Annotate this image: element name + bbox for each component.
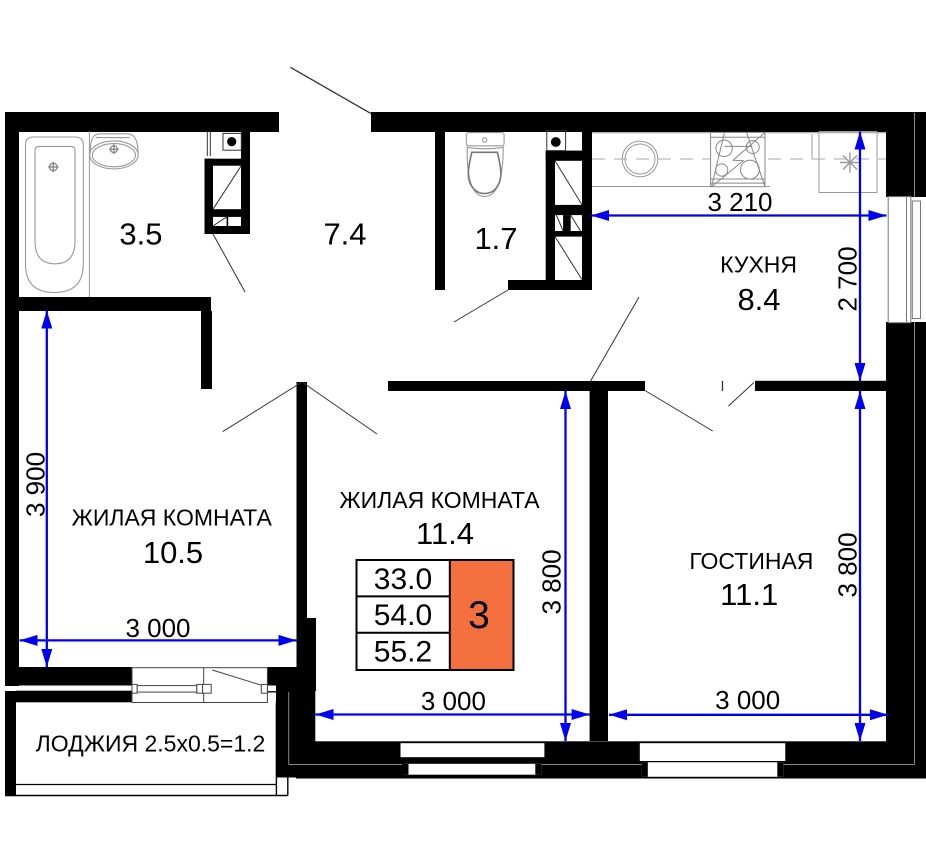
svg-text:54.0: 54.0 xyxy=(374,599,432,632)
svg-text:3 800: 3 800 xyxy=(833,532,863,597)
svg-text:3 000: 3 000 xyxy=(421,686,486,716)
svg-text:33.0: 33.0 xyxy=(374,563,432,596)
svg-text:3 210: 3 210 xyxy=(707,187,772,217)
svg-text:ЛОДЖИЯ 2.5х0.5=1.2: ЛОДЖИЯ 2.5х0.5=1.2 xyxy=(36,731,266,757)
svg-text:11.1: 11.1 xyxy=(720,577,778,612)
svg-text:ГОСТИНАЯ: ГОСТИНАЯ xyxy=(689,548,813,574)
svg-text:ЖИЛАЯ КОМНАТА: ЖИЛАЯ КОМНАТА xyxy=(339,487,540,513)
svg-text:3: 3 xyxy=(468,594,490,637)
svg-text:3 800: 3 800 xyxy=(537,549,567,614)
svg-text:11.4: 11.4 xyxy=(416,516,474,551)
svg-text:ЖИЛАЯ КОМНАТА: ЖИЛАЯ КОМНАТА xyxy=(72,505,273,531)
svg-text:55.2: 55.2 xyxy=(374,636,432,669)
svg-text:1.7: 1.7 xyxy=(474,221,517,256)
svg-text:3.5: 3.5 xyxy=(119,217,162,252)
svg-text:10.5: 10.5 xyxy=(143,535,203,570)
svg-text:2 700: 2 700 xyxy=(833,246,863,311)
svg-text:7.4: 7.4 xyxy=(323,217,366,252)
svg-text:3 000: 3 000 xyxy=(125,613,190,643)
svg-text:8.4: 8.4 xyxy=(737,282,780,317)
svg-text:3 900: 3 900 xyxy=(21,452,51,517)
svg-text:3 000: 3 000 xyxy=(715,685,780,715)
svg-text:КУХНЯ: КУХНЯ xyxy=(720,252,797,278)
